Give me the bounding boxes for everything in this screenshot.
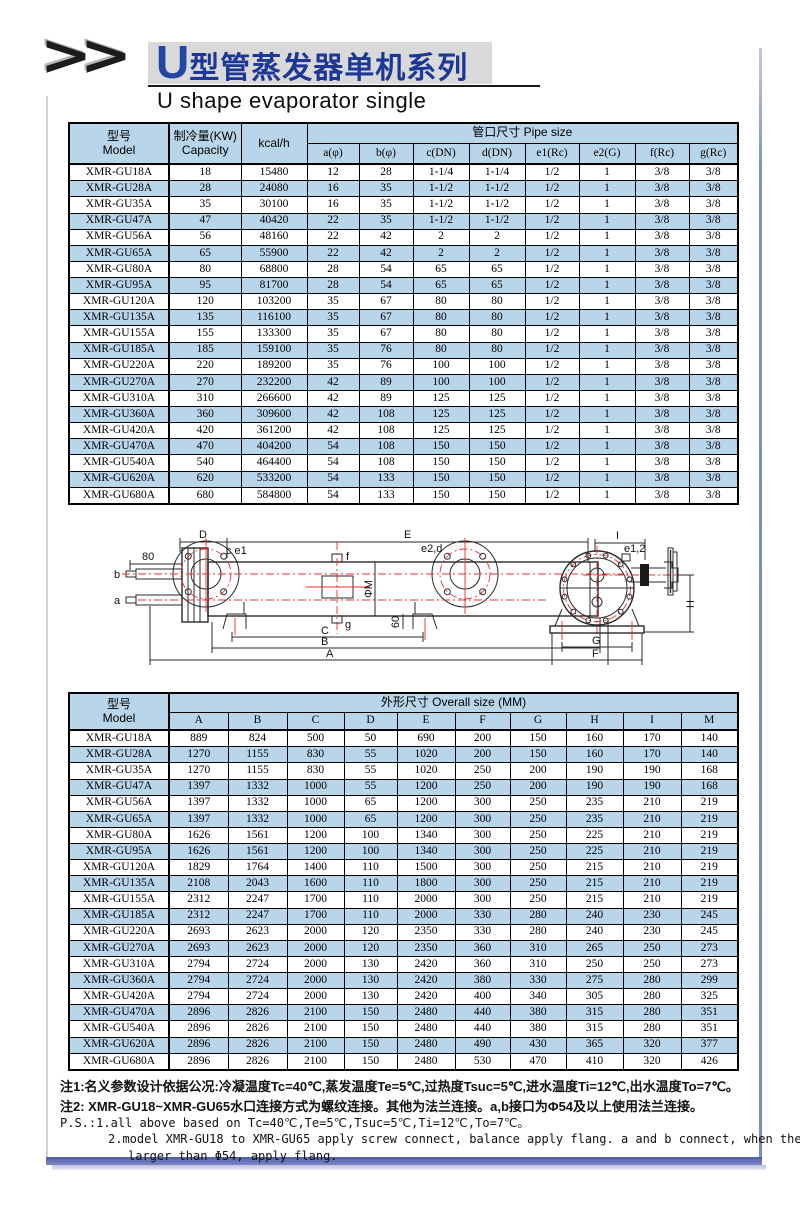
value-cell: 219 bbox=[681, 844, 738, 860]
value-cell: 42 bbox=[307, 390, 359, 406]
value-cell: 2724 bbox=[228, 973, 287, 989]
value-cell: 155 bbox=[169, 326, 241, 342]
value-cell: 230 bbox=[623, 924, 681, 940]
value-cell: 1200 bbox=[287, 844, 344, 860]
value-cell: 120 bbox=[169, 294, 241, 310]
value-cell: 250 bbox=[623, 956, 681, 972]
value-cell: 1020 bbox=[397, 763, 455, 779]
value-cell: 1020 bbox=[397, 747, 455, 763]
value-cell: 440 bbox=[455, 1021, 510, 1037]
value-cell: 81700 bbox=[241, 278, 307, 294]
value-cell: 310 bbox=[510, 940, 566, 956]
port-label-e2d: e2,d bbox=[421, 543, 442, 555]
value-cell: 280 bbox=[623, 973, 681, 989]
value-cell: 1 bbox=[579, 245, 635, 261]
model-cell: XMR-GU56A bbox=[69, 229, 169, 245]
value-cell: 2100 bbox=[287, 1005, 344, 1021]
value-cell: 55 bbox=[344, 779, 397, 795]
model-cell: XMR-GU270A bbox=[69, 940, 169, 956]
value-cell: 108 bbox=[359, 455, 413, 471]
value-cell: 200 bbox=[510, 779, 566, 795]
value-cell: 108 bbox=[359, 439, 413, 455]
technical-drawing: D E 80 b a c e1 e2,d bbox=[78, 514, 740, 692]
table-row: XMR-GU80A1626156112001001340300250225210… bbox=[69, 827, 738, 843]
port-label-f: f bbox=[346, 551, 350, 563]
table-row: XMR-GU28A282408016351-1/21-1/21/213/83/8 bbox=[69, 181, 738, 197]
value-cell: 310 bbox=[169, 390, 241, 406]
value-cell: 280 bbox=[623, 1021, 681, 1037]
value-cell: 430 bbox=[510, 1037, 566, 1053]
value-cell: 1340 bbox=[397, 844, 455, 860]
value-cell: 135 bbox=[169, 310, 241, 326]
value-cell: 1 bbox=[579, 471, 635, 487]
value-cell: 225 bbox=[566, 844, 623, 860]
value-cell: 300 bbox=[455, 892, 510, 908]
value-cell: 2623 bbox=[228, 940, 287, 956]
value-cell: 1700 bbox=[287, 892, 344, 908]
value-cell: 2350 bbox=[397, 940, 455, 956]
value-cell: 2826 bbox=[228, 1037, 287, 1053]
value-cell: 490 bbox=[455, 1037, 510, 1053]
value-cell: 1 bbox=[579, 390, 635, 406]
col-header-b: b(φ) bbox=[359, 143, 413, 164]
value-cell: 1/2 bbox=[525, 358, 579, 374]
dim-label-60: 60 bbox=[390, 616, 402, 628]
value-cell: 42 bbox=[307, 407, 359, 423]
value-cell: 250 bbox=[510, 860, 566, 876]
value-cell: 1340 bbox=[397, 827, 455, 843]
value-cell: 2108 bbox=[169, 876, 228, 892]
value-cell: 361200 bbox=[241, 423, 307, 439]
value-cell: 1000 bbox=[287, 795, 344, 811]
model-cell: XMR-GU620A bbox=[69, 1037, 169, 1053]
value-cell: 1155 bbox=[228, 747, 287, 763]
value-cell: 65 bbox=[344, 795, 397, 811]
value-cell: 305 bbox=[566, 989, 623, 1005]
page-subtitle: U shape evaporator single bbox=[157, 88, 426, 114]
value-cell: 150 bbox=[413, 439, 469, 455]
value-cell: 2693 bbox=[169, 940, 228, 956]
value-cell: 1 bbox=[579, 164, 635, 181]
value-cell: 824 bbox=[228, 730, 287, 747]
port-label-g: g bbox=[345, 619, 351, 631]
value-cell: 2247 bbox=[228, 892, 287, 908]
value-cell: 1-1/2 bbox=[469, 197, 525, 213]
value-cell: 3/8 bbox=[635, 455, 689, 471]
value-cell: 235 bbox=[566, 795, 623, 811]
col-header-B: B bbox=[228, 712, 287, 730]
value-cell: 1/2 bbox=[525, 407, 579, 423]
value-cell: 299 bbox=[681, 973, 738, 989]
value-cell: 320 bbox=[623, 1053, 681, 1070]
value-cell: 1 bbox=[579, 487, 635, 504]
dim-label-phiM: ΦM bbox=[363, 580, 375, 598]
value-cell: 325 bbox=[681, 989, 738, 1005]
value-cell: 133300 bbox=[241, 326, 307, 342]
value-cell: 54 bbox=[359, 261, 413, 277]
value-cell: 1-1/2 bbox=[413, 181, 469, 197]
value-cell: 3/8 bbox=[689, 390, 738, 406]
value-cell: 2480 bbox=[397, 1005, 455, 1021]
value-cell: 150 bbox=[469, 439, 525, 455]
value-cell: 300 bbox=[455, 811, 510, 827]
value-cell: 250 bbox=[510, 795, 566, 811]
value-cell: 168 bbox=[681, 763, 738, 779]
value-cell: 351 bbox=[681, 1005, 738, 1021]
col-header-H: H bbox=[566, 712, 623, 730]
value-cell: 210 bbox=[623, 860, 681, 876]
value-cell: 12 bbox=[307, 164, 359, 181]
value-cell: 1/2 bbox=[525, 164, 579, 181]
table-row: XMR-GU28A1270115583055102020015016017014… bbox=[69, 747, 738, 763]
value-cell: 170 bbox=[623, 747, 681, 763]
value-cell: 140 bbox=[681, 730, 738, 747]
value-cell: 110 bbox=[344, 892, 397, 908]
page-footer-shadow bbox=[52, 1165, 766, 1170]
value-cell: 1270 bbox=[169, 763, 228, 779]
col-header-E: E bbox=[397, 712, 455, 730]
value-cell: 125 bbox=[469, 407, 525, 423]
page-title: U型管蒸发器单机系列 bbox=[148, 42, 492, 84]
value-cell: 3/8 bbox=[689, 358, 738, 374]
value-cell: 1200 bbox=[397, 795, 455, 811]
model-cell: XMR-GU470A bbox=[69, 439, 169, 455]
col-header-M: M bbox=[681, 712, 738, 730]
value-cell: 3/8 bbox=[689, 213, 738, 229]
value-cell: 1-1/4 bbox=[413, 164, 469, 181]
table-row: XMR-GU220A269326232000120235033028024023… bbox=[69, 924, 738, 940]
value-cell: 3/8 bbox=[689, 455, 738, 471]
table-row: XMR-GU120A120103200356780801/213/83/8 bbox=[69, 294, 738, 310]
value-cell: 1 bbox=[579, 374, 635, 390]
value-cell: 54 bbox=[307, 471, 359, 487]
value-cell: 351 bbox=[681, 1021, 738, 1037]
model-cell: XMR-GU56A bbox=[69, 795, 169, 811]
value-cell: 2724 bbox=[228, 956, 287, 972]
model-cell: XMR-GU470A bbox=[69, 1005, 169, 1021]
value-cell: 1 bbox=[579, 407, 635, 423]
value-cell: 54 bbox=[359, 278, 413, 294]
port-label-ce1: c e1 bbox=[226, 545, 247, 557]
model-cell: XMR-GU135A bbox=[69, 876, 169, 892]
value-cell: 2896 bbox=[169, 1037, 228, 1053]
value-cell: 3/8 bbox=[635, 439, 689, 455]
value-cell: 1/2 bbox=[525, 197, 579, 213]
value-cell: 250 bbox=[510, 811, 566, 827]
model-cell: XMR-GU18A bbox=[69, 164, 169, 181]
value-cell: 3/8 bbox=[635, 390, 689, 406]
value-cell: 80 bbox=[413, 326, 469, 342]
value-cell: 210 bbox=[623, 876, 681, 892]
value-cell: 2623 bbox=[228, 924, 287, 940]
value-cell: 1 bbox=[579, 278, 635, 294]
table-row: XMR-GU270A27023220042891001001/213/83/8 bbox=[69, 374, 738, 390]
value-cell: 89 bbox=[359, 374, 413, 390]
value-cell: 150 bbox=[344, 1021, 397, 1037]
value-cell: 1626 bbox=[169, 827, 228, 843]
value-cell: 3/8 bbox=[689, 164, 738, 181]
model-cell: XMR-GU120A bbox=[69, 294, 169, 310]
value-cell: 3/8 bbox=[689, 310, 738, 326]
table-row: XMR-GU185A231222471700110200033028024023… bbox=[69, 908, 738, 924]
value-cell: 310 bbox=[510, 956, 566, 972]
model-cell: XMR-GU420A bbox=[69, 989, 169, 1005]
col-header-C: C bbox=[287, 712, 344, 730]
value-cell: 65 bbox=[413, 278, 469, 294]
value-cell: 690 bbox=[397, 730, 455, 747]
value-cell: 100 bbox=[469, 358, 525, 374]
value-cell: 620 bbox=[169, 471, 241, 487]
value-cell: 1000 bbox=[287, 779, 344, 795]
overall-size-table: 型号Model 外形尺寸 Overall size (MM) A B C D E… bbox=[68, 692, 739, 1071]
value-cell: 2826 bbox=[228, 1053, 287, 1070]
value-cell: 3/8 bbox=[689, 487, 738, 504]
value-cell: 55900 bbox=[241, 245, 307, 261]
value-cell: 280 bbox=[623, 1005, 681, 1021]
value-cell: 28 bbox=[359, 164, 413, 181]
value-cell: 150 bbox=[344, 1005, 397, 1021]
model-cell: XMR-GU185A bbox=[69, 342, 169, 358]
chevrons-decoration: >> bbox=[40, 21, 120, 88]
value-cell: 300 bbox=[455, 876, 510, 892]
value-cell: 1-1/4 bbox=[469, 164, 525, 181]
table-row: XMR-GU270A269326232000120235036031026525… bbox=[69, 940, 738, 956]
value-cell: 150 bbox=[413, 455, 469, 471]
value-cell: 3/8 bbox=[635, 326, 689, 342]
value-cell: 219 bbox=[681, 876, 738, 892]
value-cell: 150 bbox=[510, 730, 566, 747]
value-cell: 1/2 bbox=[525, 261, 579, 277]
value-cell: 1 bbox=[579, 294, 635, 310]
model-cell: XMR-GU65A bbox=[69, 811, 169, 827]
value-cell: 40420 bbox=[241, 213, 307, 229]
value-cell: 1/2 bbox=[525, 213, 579, 229]
table-row: XMR-GU65A65559002242221/213/83/8 bbox=[69, 245, 738, 261]
value-cell: 35 bbox=[307, 326, 359, 342]
value-cell: 65 bbox=[344, 811, 397, 827]
model-cell: XMR-GU360A bbox=[69, 973, 169, 989]
value-cell: 24080 bbox=[241, 181, 307, 197]
table-row: XMR-GU47A474042022351-1/21-1/21/213/83/8 bbox=[69, 213, 738, 229]
value-cell: 1 bbox=[579, 342, 635, 358]
value-cell: 150 bbox=[469, 487, 525, 504]
value-cell: 3/8 bbox=[689, 229, 738, 245]
value-cell: 219 bbox=[681, 892, 738, 908]
value-cell: 2 bbox=[413, 229, 469, 245]
value-cell: 1 bbox=[579, 261, 635, 277]
value-cell: 1829 bbox=[169, 860, 228, 876]
model-cell: XMR-GU680A bbox=[69, 1053, 169, 1070]
table-row: XMR-GU360A279427242000130242038033027528… bbox=[69, 973, 738, 989]
value-cell: 3/8 bbox=[689, 342, 738, 358]
value-cell: 140 bbox=[681, 747, 738, 763]
value-cell: 22 bbox=[307, 245, 359, 261]
value-cell: 133 bbox=[359, 487, 413, 504]
value-cell: 35 bbox=[307, 358, 359, 374]
value-cell: 2420 bbox=[397, 956, 455, 972]
value-cell: 3/8 bbox=[635, 229, 689, 245]
model-cell: XMR-GU35A bbox=[69, 763, 169, 779]
value-cell: 240 bbox=[566, 908, 623, 924]
table-row: XMR-GU35A353010016351-1/21-1/21/213/83/8 bbox=[69, 197, 738, 213]
value-cell: 48160 bbox=[241, 229, 307, 245]
value-cell: 300 bbox=[455, 860, 510, 876]
value-cell: 830 bbox=[287, 763, 344, 779]
model-cell: XMR-GU80A bbox=[69, 827, 169, 843]
table-row: XMR-GU310A31026660042891251251/213/83/8 bbox=[69, 390, 738, 406]
value-cell: 300 bbox=[455, 844, 510, 860]
model-cell: XMR-GU47A bbox=[69, 213, 169, 229]
table-row: XMR-GU310A279427242000130242036031025025… bbox=[69, 956, 738, 972]
value-cell: 309600 bbox=[241, 407, 307, 423]
value-cell: 2000 bbox=[287, 956, 344, 972]
port-label-b: b bbox=[114, 569, 120, 581]
value-cell: 2 bbox=[469, 245, 525, 261]
value-cell: 200 bbox=[510, 763, 566, 779]
value-cell: 1/2 bbox=[525, 245, 579, 261]
value-cell: 3/8 bbox=[689, 374, 738, 390]
value-cell: 210 bbox=[623, 795, 681, 811]
table-row: XMR-GU95A1626156112001001340300250225210… bbox=[69, 844, 738, 860]
value-cell: 2794 bbox=[169, 956, 228, 972]
model-cell: XMR-GU680A bbox=[69, 487, 169, 504]
value-cell: 190 bbox=[566, 779, 623, 795]
value-cell: 2724 bbox=[228, 989, 287, 1005]
value-cell: 280 bbox=[623, 989, 681, 1005]
value-cell: 3/8 bbox=[689, 245, 738, 261]
value-cell: 3/8 bbox=[635, 423, 689, 439]
value-cell: 404200 bbox=[241, 439, 307, 455]
value-cell: 22 bbox=[307, 213, 359, 229]
value-cell: 235 bbox=[566, 811, 623, 827]
value-cell: 35 bbox=[307, 342, 359, 358]
note-ps-2-cont: larger than Φ54, apply flang. bbox=[128, 1149, 338, 1163]
value-cell: 2247 bbox=[228, 908, 287, 924]
value-cell: 330 bbox=[510, 973, 566, 989]
value-cell: 1/2 bbox=[525, 278, 579, 294]
value-cell: 1 bbox=[579, 213, 635, 229]
value-cell: 1/2 bbox=[525, 310, 579, 326]
value-cell: 103200 bbox=[241, 294, 307, 310]
table-row: XMR-GU540A540464400541081501501/213/83/8 bbox=[69, 455, 738, 471]
value-cell: 170 bbox=[623, 730, 681, 747]
model-cell: XMR-GU35A bbox=[69, 197, 169, 213]
model-cell: XMR-GU47A bbox=[69, 779, 169, 795]
col-header-G: G bbox=[510, 712, 566, 730]
value-cell: 245 bbox=[681, 924, 738, 940]
value-cell: 80 bbox=[413, 342, 469, 358]
value-cell: 3/8 bbox=[689, 278, 738, 294]
model-cell: XMR-GU540A bbox=[69, 455, 169, 471]
value-cell: 1332 bbox=[228, 795, 287, 811]
value-cell: 464400 bbox=[241, 455, 307, 471]
value-cell: 2896 bbox=[169, 1021, 228, 1037]
value-cell: 3/8 bbox=[635, 164, 689, 181]
value-cell: 1 bbox=[579, 197, 635, 213]
table-row: XMR-GU620A620533200541331501501/213/83/8 bbox=[69, 471, 738, 487]
value-cell: 67 bbox=[359, 294, 413, 310]
value-cell: 3/8 bbox=[689, 181, 738, 197]
col-header-capacity: 制冷量(KW)Capacity bbox=[169, 123, 241, 164]
value-cell: 210 bbox=[623, 892, 681, 908]
value-cell: 110 bbox=[344, 908, 397, 924]
value-cell: 54 bbox=[307, 455, 359, 471]
value-cell: 889 bbox=[169, 730, 228, 747]
value-cell: 315 bbox=[566, 1005, 623, 1021]
value-cell: 1/2 bbox=[525, 326, 579, 342]
value-cell: 1 bbox=[579, 358, 635, 374]
value-cell: 110 bbox=[344, 876, 397, 892]
value-cell: 1-1/2 bbox=[469, 181, 525, 197]
value-cell: 1000 bbox=[287, 811, 344, 827]
value-cell: 18 bbox=[169, 164, 241, 181]
value-cell: 2000 bbox=[397, 908, 455, 924]
col-header-c: c(DN) bbox=[413, 143, 469, 164]
value-cell: 150 bbox=[469, 455, 525, 471]
value-cell: 120 bbox=[344, 924, 397, 940]
value-cell: 35 bbox=[359, 181, 413, 197]
value-cell: 30100 bbox=[241, 197, 307, 213]
value-cell: 1700 bbox=[287, 908, 344, 924]
value-cell: 42 bbox=[307, 374, 359, 390]
value-cell: 133 bbox=[359, 471, 413, 487]
col-header-I: I bbox=[623, 712, 681, 730]
value-cell: 530 bbox=[455, 1053, 510, 1070]
value-cell: 1500 bbox=[397, 860, 455, 876]
value-cell: 380 bbox=[510, 1005, 566, 1021]
value-cell: 28 bbox=[307, 261, 359, 277]
value-cell: 190 bbox=[623, 779, 681, 795]
value-cell: 65 bbox=[169, 245, 241, 261]
value-cell: 210 bbox=[623, 844, 681, 860]
value-cell: 230 bbox=[623, 908, 681, 924]
value-cell: 2000 bbox=[287, 924, 344, 940]
value-cell: 130 bbox=[344, 973, 397, 989]
value-cell: 100 bbox=[413, 374, 469, 390]
value-cell: 1626 bbox=[169, 844, 228, 860]
value-cell: 3/8 bbox=[635, 487, 689, 504]
value-cell: 56 bbox=[169, 229, 241, 245]
value-cell: 42 bbox=[359, 229, 413, 245]
value-cell: 35 bbox=[169, 197, 241, 213]
value-cell: 1561 bbox=[228, 827, 287, 843]
value-cell: 185 bbox=[169, 342, 241, 358]
value-cell: 22 bbox=[307, 229, 359, 245]
value-cell: 315 bbox=[566, 1021, 623, 1037]
value-cell: 35 bbox=[307, 310, 359, 326]
value-cell: 3/8 bbox=[689, 261, 738, 277]
value-cell: 3/8 bbox=[635, 342, 689, 358]
value-cell: 68800 bbox=[241, 261, 307, 277]
model-cell: XMR-GU135A bbox=[69, 310, 169, 326]
value-cell: 400 bbox=[455, 989, 510, 1005]
value-cell: 2312 bbox=[169, 908, 228, 924]
value-cell: 1764 bbox=[228, 860, 287, 876]
model-cell: XMR-GU28A bbox=[69, 747, 169, 763]
value-cell: 2000 bbox=[287, 940, 344, 956]
value-cell: 360 bbox=[455, 940, 510, 956]
value-cell: 160 bbox=[566, 730, 623, 747]
table-row: XMR-GU18A181548012281-1/41-1/41/213/83/8 bbox=[69, 164, 738, 181]
value-cell: 108 bbox=[359, 423, 413, 439]
value-cell: 3/8 bbox=[635, 471, 689, 487]
value-cell: 440 bbox=[455, 1005, 510, 1021]
model-cell: XMR-GU185A bbox=[69, 908, 169, 924]
value-cell: 42 bbox=[307, 423, 359, 439]
value-cell: 2000 bbox=[287, 989, 344, 1005]
value-cell: 16 bbox=[307, 181, 359, 197]
value-cell: 3/8 bbox=[635, 294, 689, 310]
